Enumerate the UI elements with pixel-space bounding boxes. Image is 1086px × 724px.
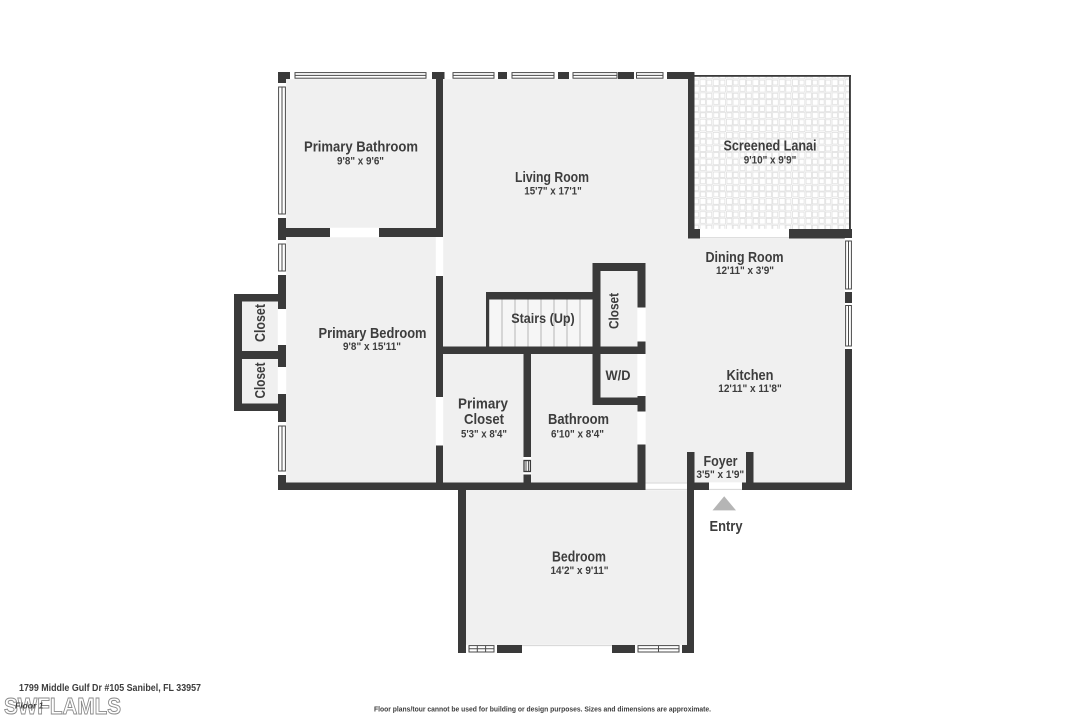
svg-text:Primary: Primary	[458, 397, 509, 413]
svg-text:Dining Room: Dining Room	[706, 250, 784, 266]
svg-text:14'2" x 9'11": 14'2" x 9'11"	[551, 565, 609, 577]
svg-text:Closet: Closet	[607, 293, 622, 329]
svg-text:Primary Bedroom: Primary Bedroom	[319, 326, 427, 342]
svg-text:Stairs (Up): Stairs (Up)	[511, 311, 575, 326]
svg-text:15'7" x 17'1": 15'7" x 17'1"	[524, 185, 582, 197]
svg-text:Floor plans/tour cannot be use: Floor plans/tour cannot be used for buil…	[374, 705, 711, 714]
svg-text:Closet: Closet	[253, 362, 269, 398]
svg-text:W/D: W/D	[606, 368, 631, 383]
svg-text:Bedroom: Bedroom	[552, 550, 606, 566]
svg-text:Closet: Closet	[464, 412, 504, 428]
svg-text:Kitchen: Kitchen	[727, 368, 774, 384]
svg-text:Screened Lanai: Screened Lanai	[724, 138, 817, 154]
svg-text:3'5" x 1'9": 3'5" x 1'9"	[696, 469, 744, 481]
svg-text:Closet: Closet	[253, 304, 269, 342]
svg-text:Entry: Entry	[710, 519, 744, 535]
svg-text:9'8" x 15'11": 9'8" x 15'11"	[343, 341, 401, 353]
svg-text:Living Room: Living Room	[515, 170, 589, 186]
svg-text:5'3" x 8'4": 5'3" x 8'4"	[461, 429, 507, 441]
svg-text:Foyer: Foyer	[704, 454, 738, 470]
svg-text:9'8" x 9'6": 9'8" x 9'6"	[337, 155, 384, 167]
svg-text:12'11" x 11'8": 12'11" x 11'8"	[718, 383, 782, 395]
svg-text:6'10" x 8'4": 6'10" x 8'4"	[551, 429, 604, 441]
svg-text:Floor 1: Floor 1	[15, 701, 44, 711]
svg-text:Primary Bathroom: Primary Bathroom	[304, 140, 418, 156]
svg-text:9'10" x 9'9": 9'10" x 9'9"	[744, 155, 797, 167]
svg-text:12'11" x 3'9": 12'11" x 3'9"	[716, 265, 774, 277]
svg-text:Bathroom: Bathroom	[548, 412, 609, 428]
